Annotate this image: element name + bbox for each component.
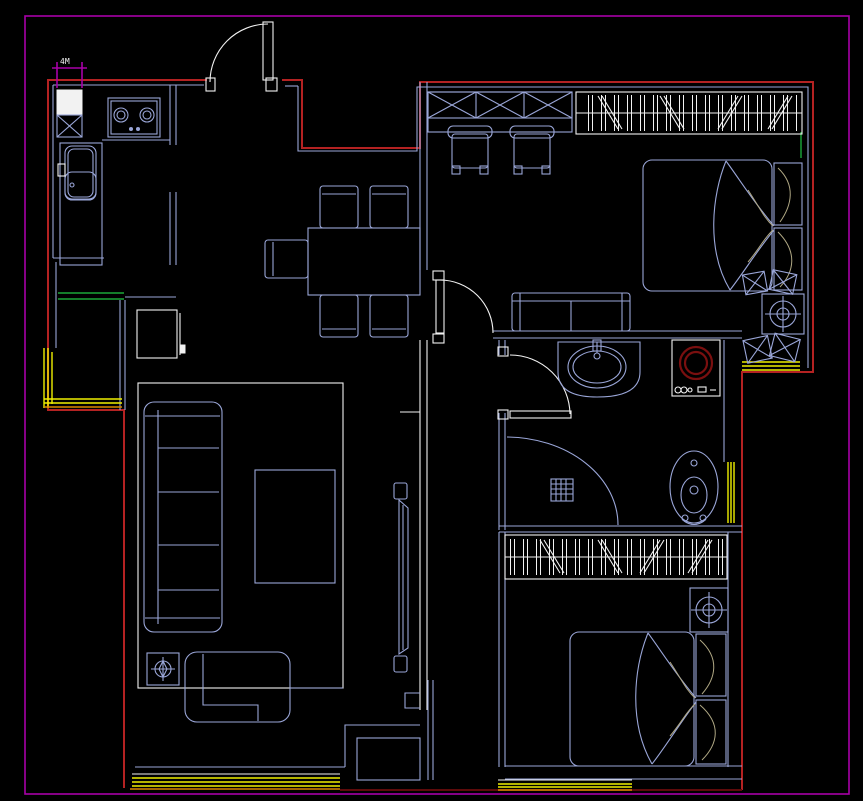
living-room — [138, 383, 420, 780]
ceiling-lamp-icon — [762, 294, 804, 334]
sofa-icon — [144, 402, 222, 632]
dining-chair — [265, 240, 308, 278]
bedroom-chair — [448, 126, 492, 174]
coffee-table — [255, 470, 335, 583]
dining-set-icon — [265, 186, 420, 337]
dining-chair — [370, 186, 408, 228]
rug — [138, 383, 343, 688]
toilet-icon — [670, 451, 718, 525]
bed-icon — [643, 160, 802, 291]
ceiling-lamp-icon — [147, 653, 179, 685]
bathroom — [507, 340, 720, 525]
chaise-icon — [185, 652, 343, 722]
fridge-icon — [57, 90, 82, 115]
shaft-icon — [57, 115, 82, 137]
sofa-icon — [512, 293, 630, 331]
dimension-text: 4M — [60, 57, 70, 66]
dining-chair — [320, 295, 358, 337]
washing-machine-icon — [672, 340, 720, 396]
bedroom-1 — [428, 92, 804, 363]
bed-icon — [570, 632, 726, 766]
bedroom-chair — [510, 126, 554, 174]
interior-walls — [53, 82, 808, 780]
wardrobe-hanging-icon — [505, 535, 727, 579]
exterior-walls — [48, 80, 813, 790]
drawing-border — [25, 16, 849, 794]
floor-plan-drawing: 4M — [0, 0, 863, 801]
fridge-icon — [137, 310, 185, 358]
dining-chair — [320, 186, 358, 228]
cad-canvas: 4M — [0, 0, 863, 801]
dimension-annotation: 4M — [52, 57, 87, 88]
shower-icon — [507, 437, 618, 525]
entrance-door-icon — [206, 22, 277, 91]
bedroom-2 — [505, 535, 728, 766]
kitchen — [57, 90, 170, 265]
wardrobe-hanging-icon — [576, 92, 802, 134]
dining-chair — [370, 295, 408, 337]
kitchen-sink-icon — [58, 143, 102, 265]
gas-stove-icon — [102, 98, 170, 140]
cabinet — [357, 738, 420, 780]
wash-basin-icon — [558, 340, 640, 397]
tv-icon — [394, 483, 408, 672]
ceiling-lamp-icon — [690, 588, 728, 632]
